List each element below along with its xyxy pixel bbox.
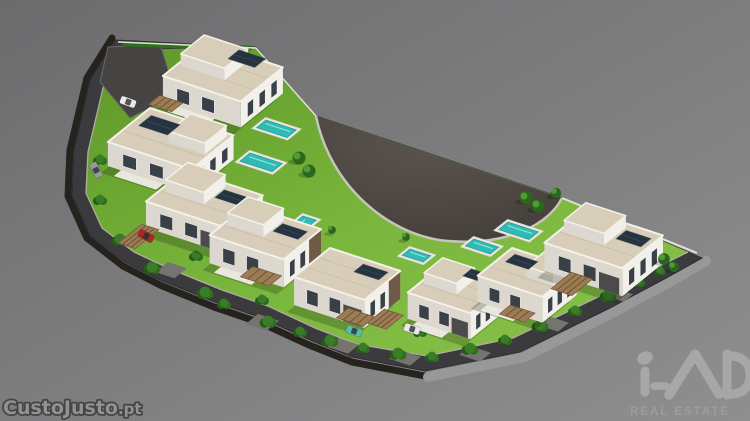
iad-logo-subtitle: REAL ESTATE [630, 406, 730, 418]
screenshot: CustoJusto.pt REAL ESTATE [0, 0, 750, 421]
site-render-image: CustoJusto.pt REAL ESTATE [0, 0, 750, 421]
watermark-site-tld: .pt [118, 400, 142, 418]
svg-text:CustoJusto.pt: CustoJusto.pt [3, 397, 142, 419]
custojusto-watermark: CustoJusto.pt [3, 397, 142, 419]
watermark-site-name: CustoJusto [3, 397, 118, 419]
